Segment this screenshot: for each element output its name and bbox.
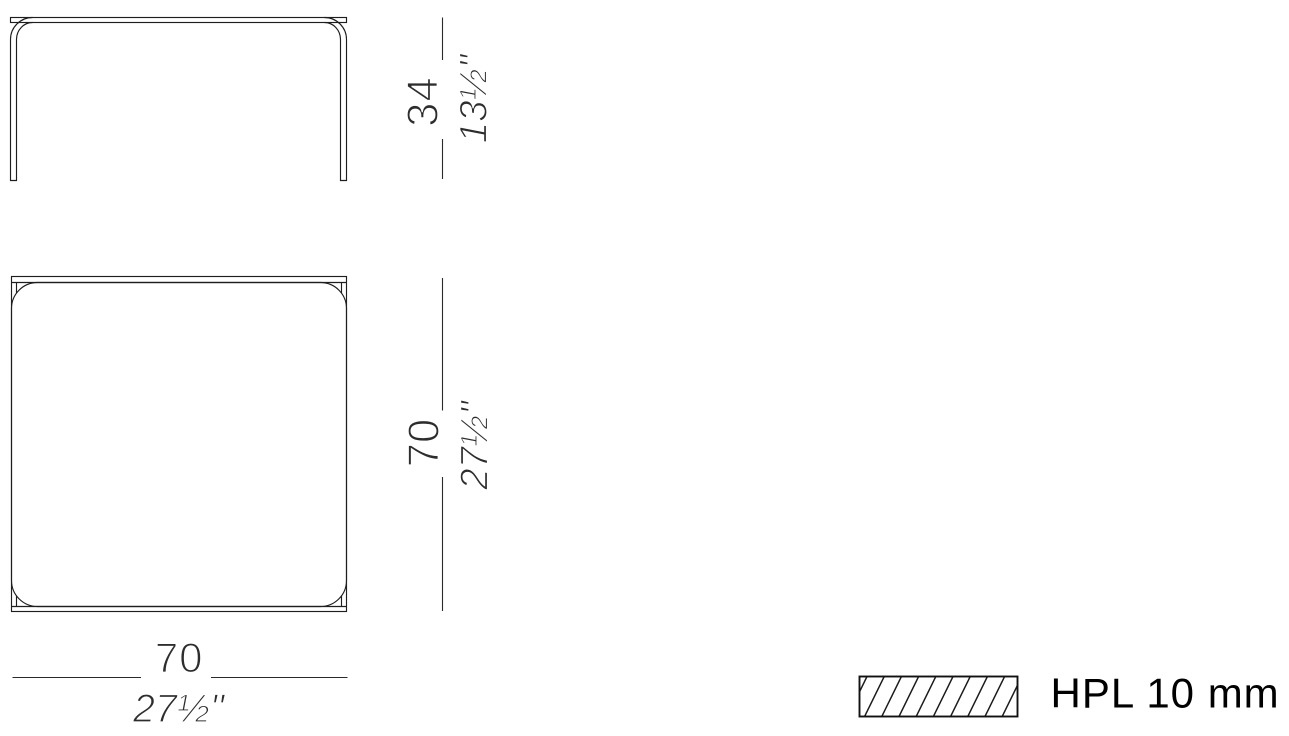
svg-text:70: 70: [155, 634, 204, 681]
svg-text:27½": 27½": [132, 687, 226, 731]
svg-text:27½": 27½": [454, 399, 497, 491]
svg-text:34: 34: [400, 76, 448, 126]
svg-text:70: 70: [401, 419, 449, 467]
svg-text:13½": 13½": [453, 52, 496, 143]
svg-text:HPL 10 mm: HPL 10 mm: [1051, 670, 1280, 717]
